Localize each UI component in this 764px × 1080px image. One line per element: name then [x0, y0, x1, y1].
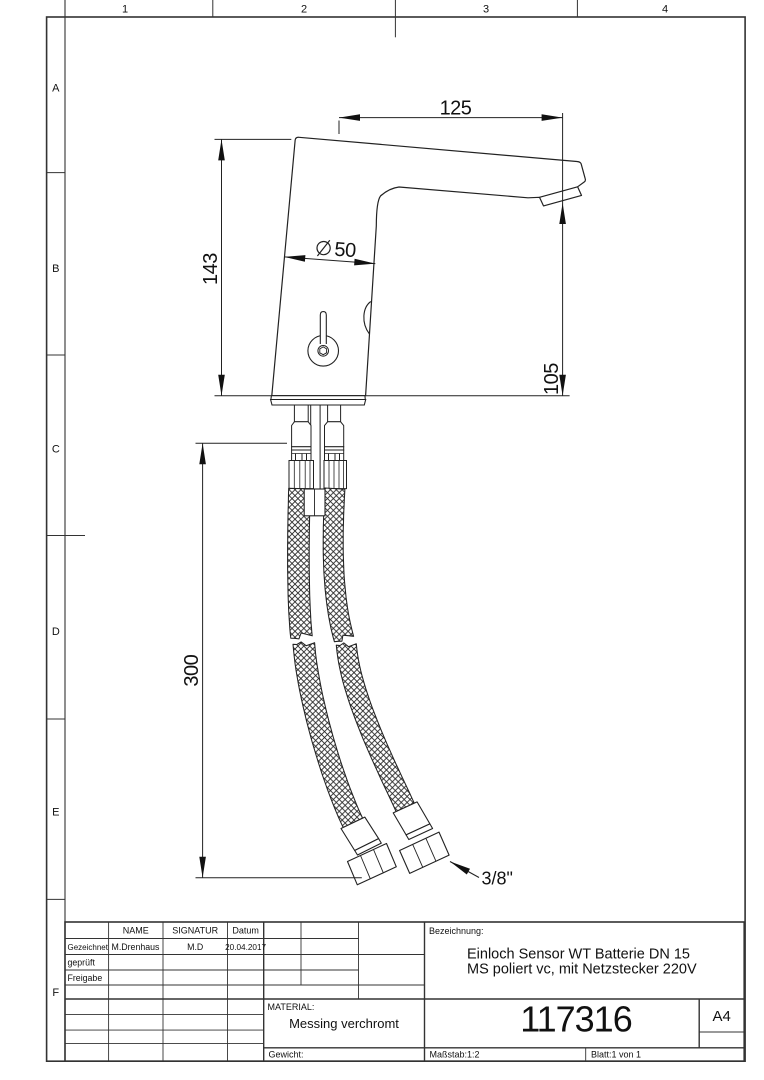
svg-text:4: 4	[662, 4, 668, 16]
svg-text:A4: A4	[713, 1008, 731, 1025]
svg-text:D: D	[52, 626, 60, 638]
svg-text:NAME: NAME	[123, 926, 149, 936]
svg-text:1: 1	[122, 4, 128, 16]
svg-text:Freigabe: Freigabe	[68, 973, 103, 983]
svg-text:A: A	[52, 83, 60, 95]
svg-text:MS poliert vc, mit Netzstecker: MS poliert vc, mit Netzstecker 220V	[467, 962, 697, 978]
svg-text:M.Drenhaus: M.Drenhaus	[112, 942, 161, 952]
svg-text:105: 105	[541, 363, 563, 395]
svg-text:2: 2	[301, 4, 307, 16]
svg-text:E: E	[52, 807, 59, 819]
svg-text:B: B	[52, 263, 59, 275]
svg-text:143: 143	[200, 253, 222, 285]
svg-text:Messing verchromt: Messing verchromt	[289, 1016, 399, 1031]
svg-text:125: 125	[440, 98, 472, 120]
svg-text:M.D: M.D	[187, 942, 203, 952]
svg-text:geprüft: geprüft	[68, 958, 96, 968]
svg-text:20.04.2017: 20.04.2017	[225, 943, 266, 952]
svg-text:Datum: Datum	[232, 926, 259, 936]
svg-text:3/8": 3/8"	[482, 869, 513, 889]
svg-text:MATERIAL:: MATERIAL:	[268, 1002, 315, 1012]
svg-text:Gewicht:: Gewicht:	[269, 1050, 304, 1060]
svg-text:Blatt:1 von 1: Blatt:1 von 1	[591, 1050, 641, 1060]
svg-text:Bezeichnung:: Bezeichnung:	[429, 926, 484, 936]
svg-text:Maßstab:1:2: Maßstab:1:2	[430, 1050, 480, 1060]
svg-text:117316: 117316	[520, 999, 631, 1040]
svg-text:300: 300	[181, 654, 203, 686]
svg-text:Einloch Sensor WT Batterie DN: Einloch Sensor WT Batterie DN 15	[467, 947, 690, 963]
svg-text:C: C	[52, 444, 60, 456]
svg-text:3: 3	[483, 4, 489, 16]
svg-text:50: 50	[334, 239, 357, 263]
svg-text:SIGNATUR: SIGNATUR	[172, 926, 218, 936]
svg-text:Gezeichnet: Gezeichnet	[68, 943, 109, 952]
svg-text:F: F	[52, 987, 59, 999]
